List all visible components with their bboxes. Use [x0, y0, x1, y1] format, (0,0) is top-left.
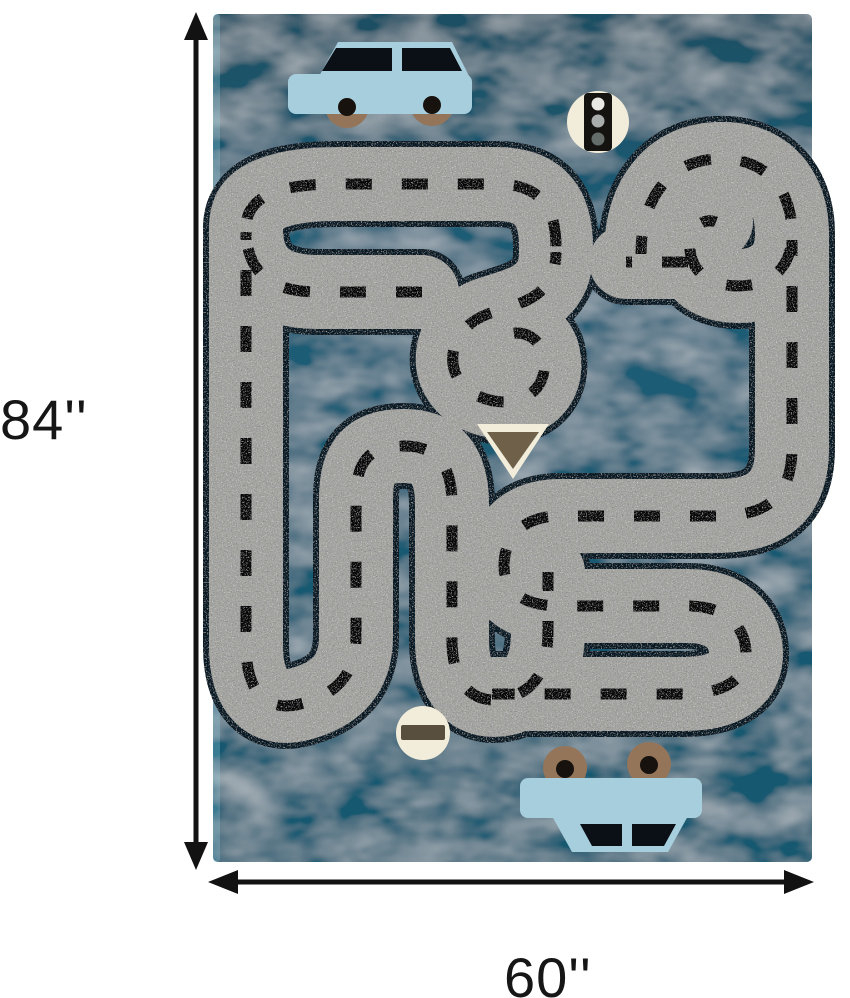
width-label: 60'': [504, 950, 592, 998]
car-body: [520, 778, 702, 818]
arrowhead-down-icon: [184, 842, 208, 870]
wheel-hub: [338, 98, 356, 116]
height-label: 84'': [0, 392, 88, 448]
no-entry-sign-icon: [396, 706, 450, 760]
arrowhead-left-icon: [208, 870, 238, 894]
wheel-hub: [556, 760, 574, 778]
no-entry-bar: [401, 725, 445, 740]
arrowhead-up-icon: [184, 12, 208, 40]
car-body: [288, 74, 472, 114]
traffic-light-middle: [592, 115, 605, 128]
width-arrow: [208, 870, 814, 894]
traffic-light-bottom: [592, 133, 605, 146]
wheel-hub: [640, 756, 658, 774]
arrowhead-right-icon: [784, 870, 814, 894]
rug-scene: [0, 0, 850, 998]
traffic-light-top: [592, 98, 605, 111]
product-image: 84'' 60'': [0, 0, 850, 998]
traffic-light-icon: [567, 91, 629, 153]
wheel-hub: [423, 96, 441, 114]
